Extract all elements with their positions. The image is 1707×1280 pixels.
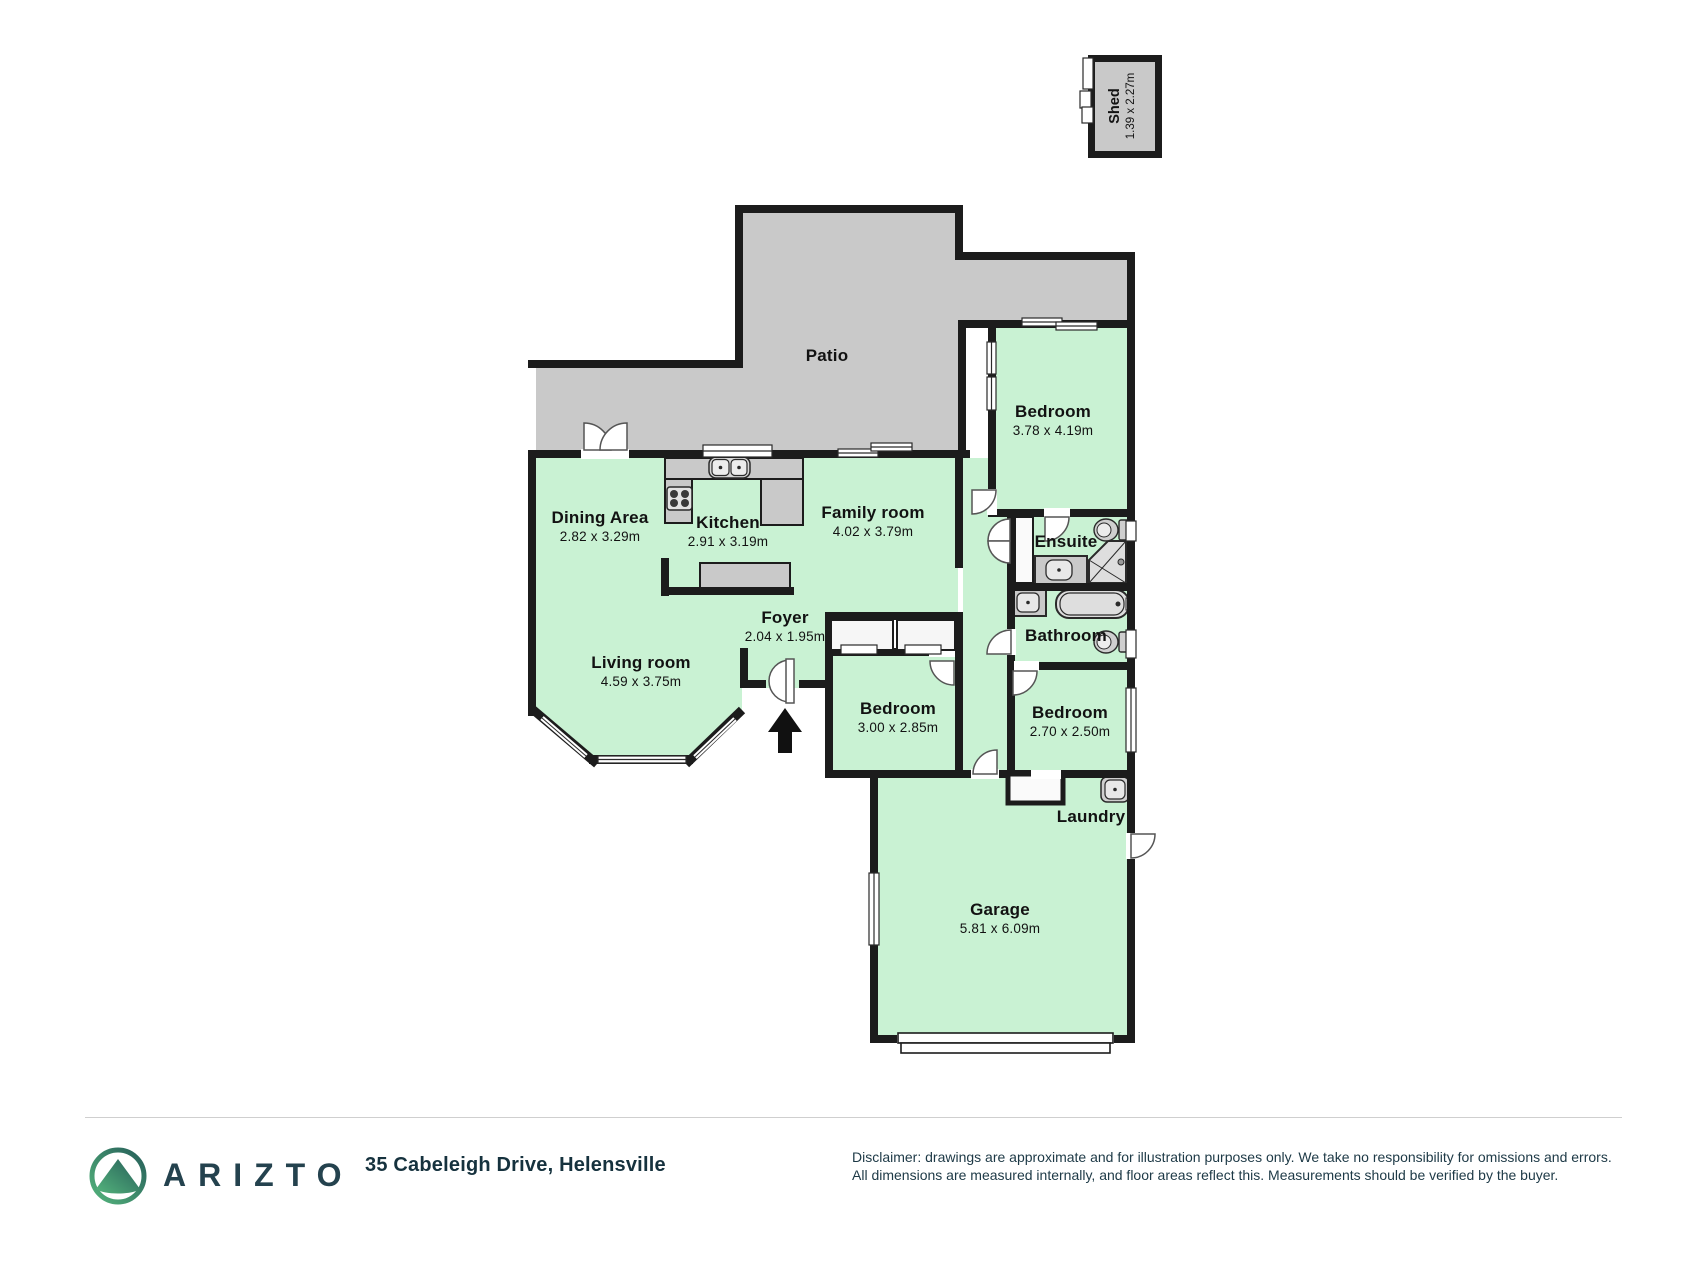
laundry-tub-icon	[1101, 777, 1129, 802]
brand-wordmark: ARIZTO	[163, 1157, 354, 1194]
room-label-laundry: Laundry	[1057, 807, 1125, 827]
floorplan-page: Dining Area 2.82 x 3.29m Kitchen 2.91 x …	[0, 0, 1707, 1280]
entry-arrow-icon	[768, 708, 802, 753]
hall-closet	[1008, 770, 1063, 803]
garage-door	[898, 1033, 1113, 1053]
room-label-dining-area: Dining Area 2.82 x 3.29m	[552, 508, 649, 545]
room-label-bedroom-mid: Bedroom 3.00 x 2.85m	[858, 699, 938, 736]
room-label-foyer: Foyer 2.04 x 1.95m	[745, 608, 825, 645]
room-label-ensuite: Ensuite	[1035, 532, 1098, 552]
bathroom-vanity-icon	[1011, 589, 1046, 616]
footer-divider	[85, 1117, 1622, 1118]
room-label-kitchen: Kitchen 2.91 x 3.19m	[688, 513, 768, 550]
floor-plan-drawing	[0, 0, 1707, 1280]
room-label-garage: Garage 5.81 x 6.09m	[960, 900, 1040, 937]
kitchen-island	[700, 563, 790, 588]
wardrobes	[831, 620, 955, 654]
stove-icon	[667, 487, 692, 510]
room-label-bathroom: Bathroom	[1025, 626, 1107, 646]
linen-closet	[1015, 517, 1033, 583]
disclaimer-line-2: All dimensions are measured internally, …	[852, 1167, 1652, 1185]
room-label-patio: Patio	[806, 346, 849, 366]
arizto-logo-icon	[88, 1146, 148, 1206]
property-address: 35 Cabeleigh Drive, Helensville	[365, 1154, 666, 1177]
room-label-shed: Shed 1.39 x 2.27m	[1092, 56, 1152, 156]
room-label-family-room: Family room 4.02 x 3.79m	[821, 503, 924, 540]
disclaimer-text: Disclaimer: drawings are approximate and…	[852, 1149, 1652, 1184]
room-label-bedroom-small: Bedroom 2.70 x 2.50m	[1030, 703, 1110, 740]
room-label-living-room: Living room 4.59 x 3.75m	[591, 653, 690, 690]
room-label-bedroom-main: Bedroom 3.78 x 4.19m	[1013, 402, 1093, 439]
bathtub-icon	[1056, 590, 1131, 618]
disclaimer-line-1: Disclaimer: drawings are approximate and…	[852, 1149, 1652, 1167]
ensuite-vanity-icon	[1035, 556, 1087, 584]
kitchen-sink-icon	[709, 457, 750, 478]
